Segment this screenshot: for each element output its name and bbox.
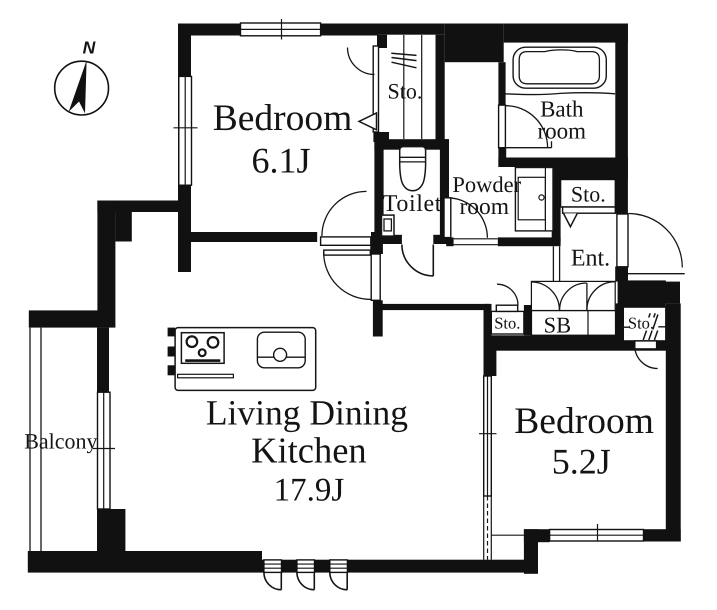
svg-text:5.2J: 5.2J	[552, 442, 611, 482]
svg-text:Bedroom: Bedroom	[213, 98, 353, 139]
svg-text:Balcony: Balcony	[24, 429, 97, 454]
svg-text:Ent.: Ent.	[571, 245, 610, 271]
svg-text:Kitchen: Kitchen	[251, 429, 367, 470]
svg-text:Toilet: Toilet	[383, 191, 442, 217]
svg-text:Bedroom: Bedroom	[514, 401, 654, 442]
svg-text:room: room	[459, 194, 509, 220]
svg-text:Sto.: Sto.	[387, 79, 422, 104]
svg-text:6.1J: 6.1J	[251, 141, 310, 181]
svg-text:Sto.: Sto.	[494, 314, 520, 333]
svg-text:SB: SB	[544, 313, 572, 338]
svg-text:room: room	[538, 118, 587, 143]
svg-text:Sto.: Sto.	[571, 182, 606, 207]
svg-text:17.9J: 17.9J	[274, 473, 345, 509]
svg-text:Sto.: Sto.	[628, 314, 654, 333]
svg-text:N: N	[83, 38, 96, 58]
svg-text:Living Dining: Living Dining	[206, 393, 408, 433]
